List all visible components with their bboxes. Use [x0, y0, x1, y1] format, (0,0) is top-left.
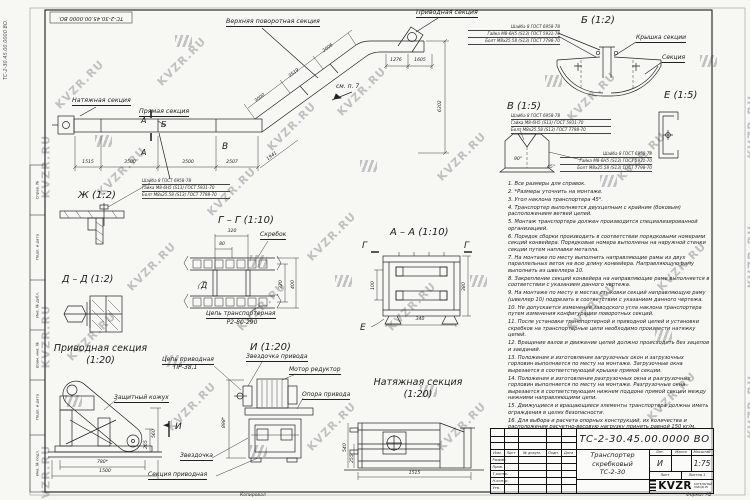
strip-field: Подп. и дата [35, 394, 40, 420]
dim-898: 898* [222, 417, 227, 428]
tb-litera-value: И [649, 455, 671, 471]
tb-col-sign: Подп. [546, 449, 561, 456]
i-view-title: И (1:20) [250, 342, 291, 353]
tension-view-scale: (1:20) [368, 389, 468, 400]
tb-name-line3: ТС-2-30 [600, 468, 626, 477]
strip-field: Инв. № подл. [35, 450, 40, 476]
hw-line: Шайба 8 ГОСТ 6958-78 [142, 178, 230, 185]
kvzr-logo-text: KVZR [658, 480, 692, 492]
detail-zh-title: Ж (1:2) [78, 190, 116, 201]
stamp-doc-number: ТС-2-30.45.00.0000 ВО. [58, 15, 123, 21]
hw-line: Болт М8х25.58 (S13) ГОСТ 7798-70 [560, 165, 652, 172]
hw-line: Гайка М8-6Н5 (S13) ГОСТ 5931-70 [560, 158, 652, 165]
note-item: 15. Движущиеся и вращающиеся элементы тр… [508, 403, 710, 416]
kvzr-logo-subtext: КОТЕЛЬНЫЙ ЗАВОД.РУ [694, 483, 712, 490]
dim-255: 255 [350, 454, 355, 463]
kvzr-logo: KVZR КОТЕЛЬНЫЙ ЗАВОД.РУ [650, 480, 713, 493]
drive-view-title: Приводная секция [48, 343, 153, 354]
drawing-sheet: KVZR.RU KVZR.RU KVZR.RU KVZR.RU KVZR.RU … [0, 0, 750, 500]
hardware-callout-v1: Шайба 8 ГОСТ 6958-78 Гайка М8-6Н5 (S13) … [511, 113, 611, 134]
tension-section-label: Натяжная секция [72, 97, 131, 106]
tb-col-izm: Изм. [491, 449, 504, 456]
note-item: 12. Вращение валов и движение цепей долж… [508, 340, 710, 353]
tb-row-tcontrol: Т.контр. [491, 470, 520, 477]
note-item: 14. Положения и изготовления разгрузочны… [508, 376, 710, 402]
note-item: 6. Порядок сборки производить в соответс… [508, 234, 710, 254]
cover-label: Крышка секции [636, 34, 686, 43]
note-item: 7. На монтаже по месту выполнить направл… [508, 255, 710, 275]
note-item: 5. Монтаж транспортера должен производит… [508, 219, 710, 232]
format-label: Формат А2 [686, 493, 712, 498]
dim-380: 380 [462, 282, 467, 291]
strip-field: Инв. № дубл. [35, 292, 40, 318]
tb-row-developed: Разраб. [491, 456, 520, 463]
note-item: 13. Положения и изготовления загрузочных… [508, 355, 710, 375]
detail-marker-d: Д [201, 281, 207, 290]
hw-line: Шайба 8 ГОСТ 6958-78 [511, 113, 611, 120]
section-gg-title: Г – Г (1:10) [218, 215, 274, 226]
hw-line: Гайка М8-6Н5 (S13) ГОСТ 5931-70 [511, 120, 611, 127]
dim-540: 540 [343, 443, 348, 452]
detail-marker-b: Б [161, 120, 167, 129]
hw-line: Гайка М8-6Н5 (S13) ГОСТ 5931-70 [142, 185, 230, 192]
tb-scale-value: 1:75 [691, 455, 713, 471]
chain-label-line2: Р2-80-290 [224, 319, 260, 326]
tb-row-approved: Утв. [491, 484, 520, 491]
section-dd-art [64, 296, 122, 332]
hw-line: Шайба 8 ГОСТ 6958-78 [468, 24, 560, 31]
dim-320-v: 320 [279, 280, 284, 289]
kvzr-logo-bars-icon [650, 480, 657, 491]
detail-marker-v: В [222, 142, 228, 152]
marker-g-right: Г [464, 241, 469, 251]
sprocket-label: Звездочка [180, 452, 213, 461]
tb-sheets: Листов 1 [681, 471, 713, 479]
drive-section-view-label: Секция приводная [148, 471, 207, 480]
tb-row-ncontrol: Н.контр. [491, 477, 520, 484]
motor-reducer-label: Мотор редуктор [289, 366, 341, 375]
dim-2507: 2507 [220, 160, 244, 165]
drive-chain-label-line2: ПР-38,1 [162, 364, 209, 371]
kvzr-logo-sub2: ЗАВОД.РУ [694, 486, 712, 489]
copied-label: Копировал [240, 493, 266, 498]
i-view-art [212, 362, 313, 476]
dim-6302: 6302 [438, 100, 443, 112]
tb-sheet: Лист [649, 471, 681, 479]
tb-col-doc: № докум. [518, 449, 546, 456]
dim-400: 400 [291, 280, 296, 289]
detail-v-title: В (1:5) [507, 101, 541, 112]
guard-cover-label: Защитный кожух [114, 394, 169, 403]
tb-row-checked: Пров. [491, 463, 520, 470]
section-aa-art [371, 252, 472, 327]
dim-1515-tension: 1515 [392, 471, 437, 476]
strip-field: Подп. и дата [35, 234, 40, 260]
dim-80: 80 [212, 242, 232, 247]
note-item: 9. На монтаже по месту в местах стыковки… [508, 290, 710, 303]
note-item: 10. Не допускается изменение заводского … [508, 305, 710, 318]
note-item: 8. Закрепление секций конвейера на напра… [508, 276, 710, 289]
strip-field: Взам. инв. № [35, 342, 40, 368]
dim-560: 560 [152, 429, 157, 438]
section-dd-title: Д – Д (1:2) [62, 274, 113, 285]
hardware-callout-zh: Шайба 8 ГОСТ 6958-78 Гайка М8-6Н5 (S13) … [142, 178, 230, 199]
hardware-callout-v2: Шайба 8 ГОСТ 6958-78 Гайка М8-6Н5 (S13) … [560, 151, 652, 172]
note-item: 11. После установки транспортерной и при… [508, 319, 710, 339]
note-item: 3. Угол наклона транспортера 45°. [508, 197, 710, 204]
section-marker-a-top: А [141, 116, 146, 125]
view-marker-i: И [175, 422, 182, 432]
drive-support-label: Опора привода [302, 391, 350, 400]
detail-b-title: Б (1:2) [581, 15, 615, 26]
dim-265: 265 [144, 440, 149, 449]
note-item: 4. Транспортер выполняется двухцепным с … [508, 205, 710, 218]
note-item: 1. Все размеры для справок. [508, 181, 710, 188]
dim-1276: 1276 [385, 58, 407, 63]
tb-document-name: Транспортер скребковый ТС-2-30 [576, 449, 649, 479]
title-block: Изм. Лист № докум. Подп. Дата Разраб. Пр… [490, 428, 714, 494]
dim-3500-a: 3500 [116, 160, 144, 165]
strip-field: Справ. № [35, 181, 40, 199]
hw-line: Шайба 8 ГОСТ 6958-78 [560, 151, 652, 158]
section-gg-art [184, 234, 299, 311]
tb-h-mass: Масса [671, 449, 691, 455]
detail-e-title: Е (1:5) [664, 90, 697, 101]
hardware-callout-drive: Шайба 8 ГОСТ 6958-78 Гайка М8-6Н5 (S13) … [468, 24, 560, 45]
hw-line: Болт М8х25.58 (S13) ГОСТ 7798-70 [142, 192, 230, 199]
top-stamp: ТС-2-30.45.00.0000 ВО. [50, 12, 132, 23]
dim-320-h: 320 [216, 229, 248, 234]
dim-1605: 1605 [408, 58, 432, 63]
scraper-label: Скребок [260, 231, 286, 240]
marker-e: Е [360, 323, 366, 333]
tb-col-date: Дата [561, 449, 576, 456]
dim-3500-b: 3500 [174, 160, 202, 165]
tb-col-list: Лист [504, 449, 518, 456]
angle-45: 45° [547, 165, 555, 170]
chain-label-line1: Цепь транспортерная [206, 310, 276, 319]
dim-100: 100 [371, 281, 376, 290]
detail-e-art [659, 112, 678, 158]
dim-1500: 1500 [80, 469, 130, 474]
tension-view-title: Натяжная секция [368, 377, 468, 388]
dim-1515: 1515 [78, 160, 98, 165]
section-aa-title: А – А (1:10) [390, 227, 448, 238]
dim-340: 340 [406, 317, 434, 322]
see-note-ref: см. п. 7 [336, 83, 359, 90]
section-marker-a-bottom: А [141, 148, 146, 157]
angle-90: 90° [514, 157, 522, 162]
technical-notes: 1. Все размеры для справок. 2. *Размеры … [508, 181, 710, 432]
drive-section-label: Приводная секция [416, 9, 478, 18]
tb-name-line2: скребковый [592, 460, 633, 469]
note-item: 2. *Размеры уточнить на монтаже. [508, 189, 710, 196]
hw-line: Болт М8х25.58 (S13) ГОСТ 7798-70 [511, 127, 611, 134]
tb-name-line1: Транспортер [590, 451, 634, 460]
section-label: Секция [662, 54, 685, 63]
upper-turn-section-label: Верхняя поворотная секция [226, 18, 320, 27]
straight-section-label: Прямая секция [139, 108, 189, 117]
hw-line: Болт М8х25.58 (S13) ГОСТ 7798-70 [468, 38, 560, 45]
drive-view-scale: (1:20) [48, 355, 153, 366]
tb-document-number: ТС-2-30.45.00.0000 ВО [576, 429, 713, 449]
drive-sprocket-label: Звездочка привода [246, 353, 308, 362]
hw-line: Гайка М8-6Н5 (S13) ГОСТ 5931-70 [468, 31, 560, 38]
dim-780: 780* [80, 460, 125, 465]
corner-doc-number: ТС-2-30.45.00.0000 ВО. [3, 20, 9, 80]
marker-g-left: Г [362, 241, 367, 251]
